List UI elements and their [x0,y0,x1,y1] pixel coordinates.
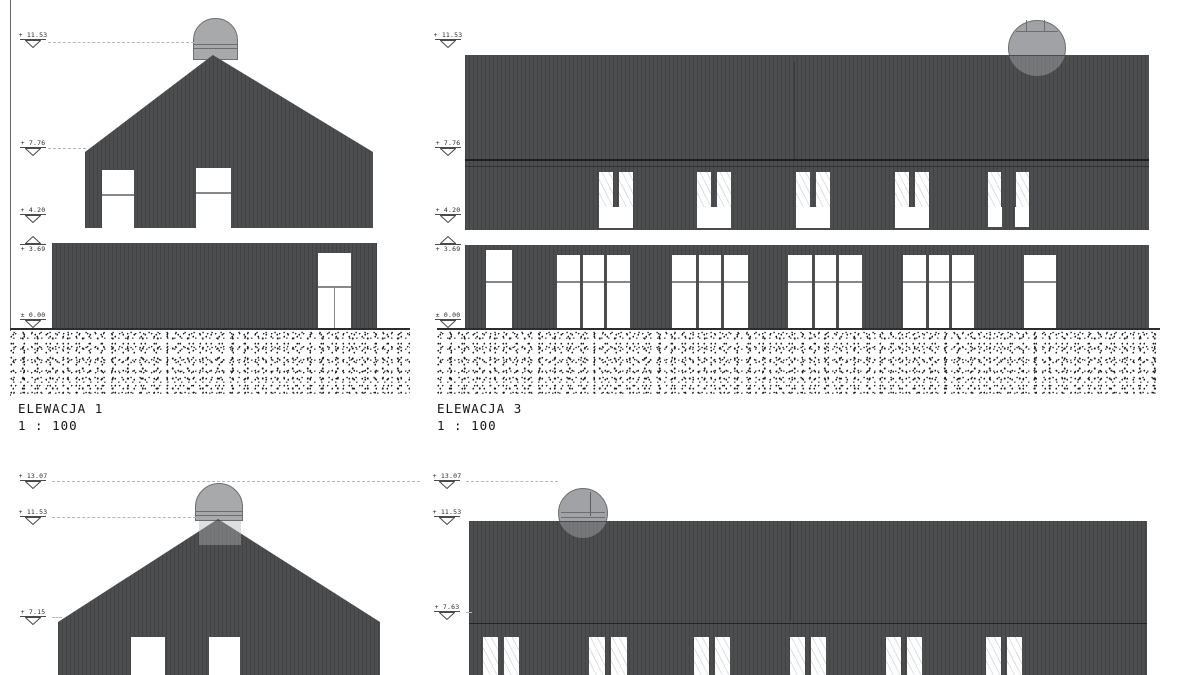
window [790,637,805,675]
level-triangle-icon [20,236,46,245]
level-marker: + 13.07 [14,472,52,489]
ground-line [437,328,1160,330]
window-glazing [903,255,974,281]
level-marker: + 11.53 [429,31,467,48]
chimney-shadow [1008,56,1066,76]
chimney-cap-line [1016,31,1058,32]
level-value: + 3.69 [21,245,46,253]
window [619,172,633,207]
level-marker: + 11.53 [14,31,52,48]
chimney-overlap [1008,56,1066,76]
level-value: + 11.53 [19,31,48,39]
chimney [193,18,238,60]
window-sill-panel [988,207,1002,227]
chimney-cap-line [561,517,605,518]
level-triangle-icon [434,480,460,489]
level-marker: + 4.20 [14,206,52,223]
window [694,637,709,675]
window [717,172,731,207]
level-triangle-icon [20,39,46,48]
chimney-cap-line [193,48,238,49]
window-sill-panel [599,207,633,228]
window-triple [672,255,748,328]
chimney-cap-line [561,512,605,513]
level-value: ± 0.00 [436,311,461,319]
window [816,172,830,207]
elevation-title-block: ELEWACJA 3 1 : 100 [437,400,522,434]
eaves-line [465,166,1149,167]
window-transom [903,281,974,283]
window-mullion [949,255,952,328]
level-value: + 7.76 [21,139,46,147]
chimney-cap-line [193,44,238,45]
window [715,637,730,675]
window-sill-panel [796,207,830,228]
level-triangle-icon [20,516,46,525]
level-value: + 13.07 [19,472,48,480]
level-triangle-icon [434,516,460,525]
ground-hatch [10,331,410,394]
window [131,637,165,675]
level-value: + 7.15 [21,608,46,616]
level-leader-line [52,481,420,482]
window-mullion [580,255,583,328]
window [1007,637,1022,675]
window-glazing [788,255,862,281]
level-triangle-icon [435,147,461,156]
chimney-overlap [558,522,608,539]
level-triangle-icon [434,611,460,620]
level-value: + 13.07 [433,472,462,480]
ground-hatch [437,331,1160,394]
window-glazing [557,255,630,281]
level-leader-line [48,148,86,149]
window [209,637,240,675]
window [988,172,1001,207]
window [196,168,231,228]
level-value: + 11.53 [433,508,462,516]
door-glazing [486,250,512,281]
door-leaf-split [334,288,335,328]
window-sill-panel [895,207,929,228]
window-triple [557,255,630,328]
level-marker: + 4.20 [429,206,467,223]
window [1016,172,1029,207]
elevation-scale: 1 : 100 [437,417,522,434]
door-glazing [318,253,351,286]
level-triangle-icon [20,214,46,223]
window-mullion [836,255,839,328]
elevation-name: ELEWACJA 1 [18,400,103,417]
level-marker: + 11.53 [428,508,466,525]
window [504,637,519,675]
window-transom [557,281,630,283]
window-transom [102,194,134,196]
level-triangle-icon [20,319,46,328]
window-glazing [1024,255,1056,281]
level-leader-line [466,481,558,482]
window-transom [1024,281,1056,283]
level-value: + 7.76 [436,139,461,147]
level-triangle-icon [435,214,461,223]
window [102,170,134,228]
window-transom [788,281,862,283]
level-leader-line [466,612,472,613]
chimney-overlap [199,521,241,545]
level-value: ± 0.00 [21,311,46,319]
window [697,172,711,207]
architectural-drawing-sheet: + 11.53 + 7.76 + 4.20 + 3.69 ± 0.00 [0,0,1200,675]
window [483,637,498,675]
window-mullion [926,255,929,328]
chimney-cap-line [195,515,243,516]
level-value: + 3.69 [436,245,461,253]
level-value: + 11.53 [19,508,48,516]
chimney-cap-line [1044,20,1045,31]
level-marker: ± 0.00 [14,311,52,328]
level-marker: ± 0.00 [429,311,467,328]
window [915,172,929,207]
level-triangle-icon [435,319,461,328]
elevation-scale: 1 : 100 [18,417,103,434]
window [611,637,627,675]
roof-seam-line [790,521,791,621]
level-marker: + 3.69 [14,236,52,253]
chimney-cap-line [1026,20,1027,31]
level-value: + 4.20 [21,206,46,214]
level-marker: + 7.63 [428,603,466,620]
window [1024,255,1056,328]
eaves-line [465,159,1149,161]
window-triple [788,255,862,328]
level-value: + 4.20 [436,206,461,214]
level-marker: + 7.76 [429,139,467,156]
level-marker: + 13.07 [428,472,466,489]
window [986,637,1001,675]
floor-slab-band [462,230,1154,245]
window-mullion [696,255,699,328]
floor-slab-band [33,228,385,243]
level-leader-line [52,517,196,518]
door-transom [486,281,512,283]
window-sill-panel [697,207,731,228]
chimney-cap-line [195,511,243,512]
window [895,172,909,207]
window [811,637,826,675]
level-marker: + 7.76 [14,139,52,156]
window-triple [903,255,974,328]
window-transom [196,192,231,194]
level-leader-line [52,617,62,618]
entrance-door [318,253,351,328]
window-transom [672,281,748,283]
window [907,637,922,675]
level-triangle-icon [20,616,46,625]
level-triangle-icon [435,39,461,48]
window [599,172,613,207]
side-elevation-wall [469,521,1147,675]
window-mullion [812,255,815,328]
eaves-line [469,623,1147,624]
level-leader-line [48,42,194,43]
level-marker: + 3.69 [429,236,467,253]
level-marker: + 11.53 [14,508,52,525]
window [886,637,901,675]
level-value: + 11.53 [434,31,463,39]
entrance-door [486,250,512,328]
elevation-title-block: ELEWACJA 1 1 : 100 [18,400,103,434]
window-mullion [721,255,724,328]
level-value: + 7.63 [435,603,460,611]
level-triangle-icon [20,147,46,156]
elevation-name: ELEWACJA 3 [437,400,522,417]
window [589,637,605,675]
level-marker: + 7.15 [14,608,52,625]
roof-seam-line [794,62,795,160]
chimney-shadow [558,522,608,538]
ground-line [10,328,410,330]
window-mullion [604,255,607,328]
window-glazing [672,255,748,281]
level-triangle-icon [20,480,46,489]
level-triangle-icon [435,236,461,245]
window-sill-panel [1015,207,1029,227]
window [796,172,810,207]
